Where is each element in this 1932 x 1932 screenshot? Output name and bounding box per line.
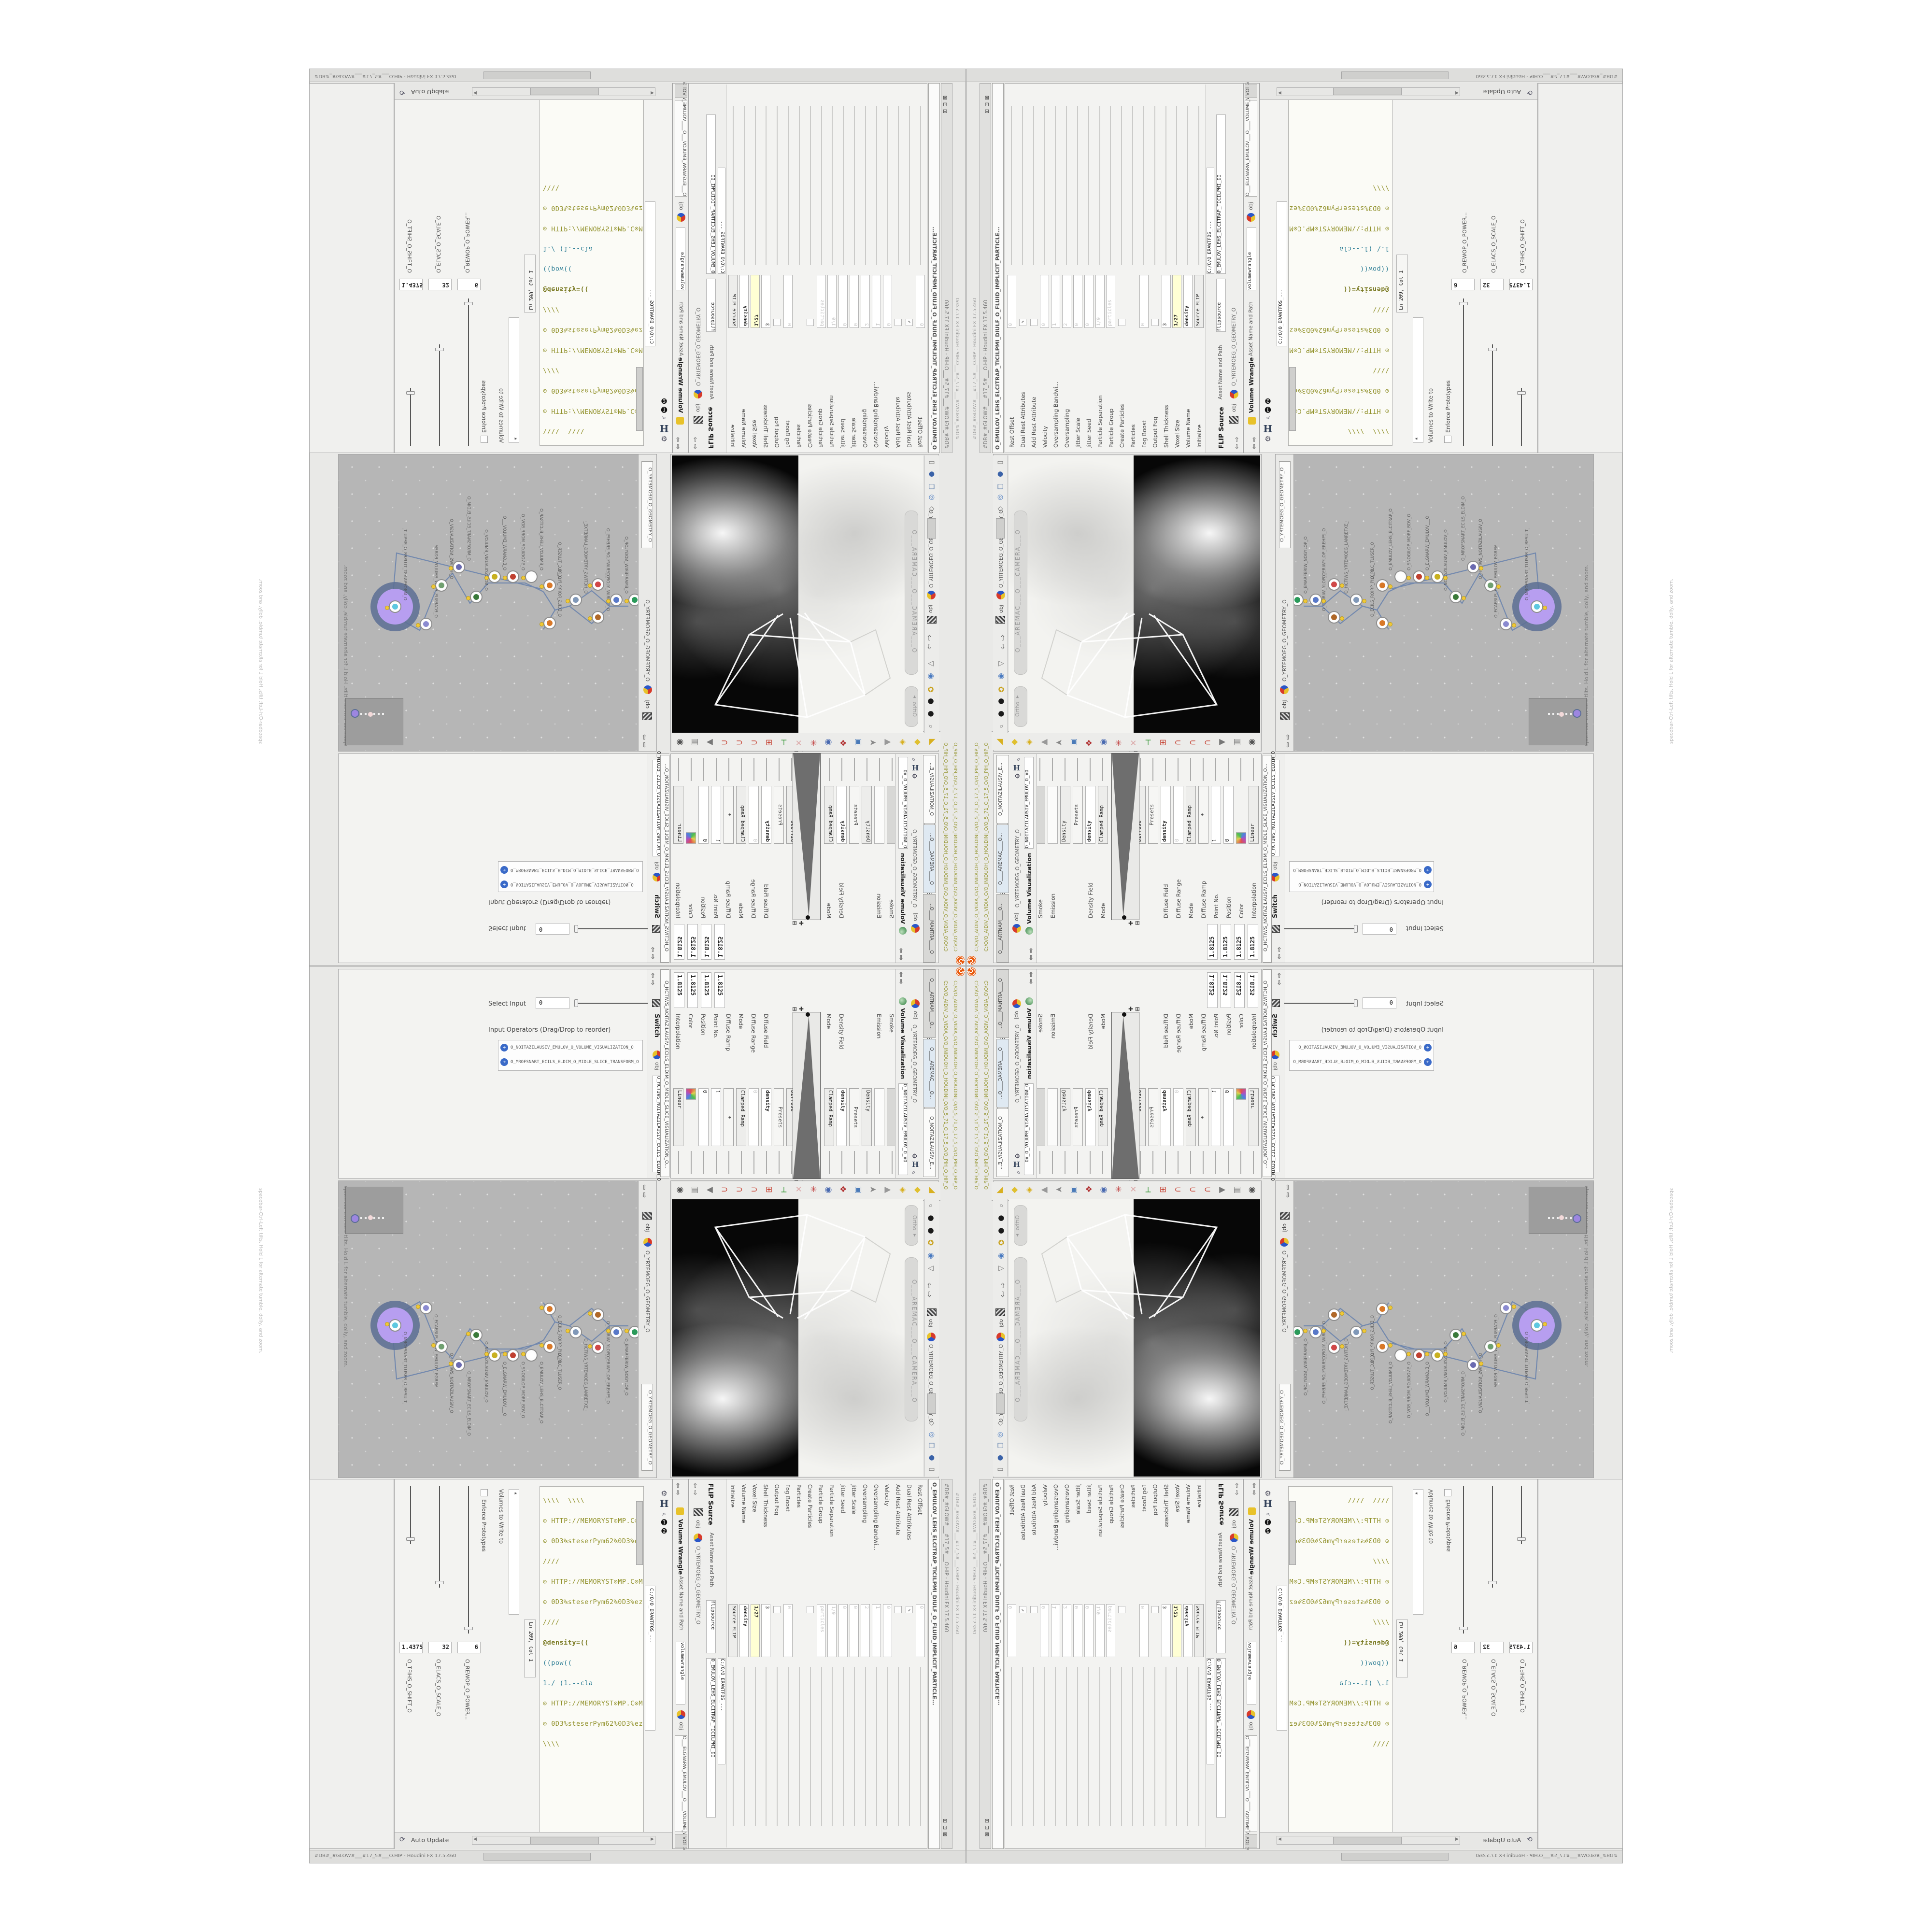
ramp-value-field[interactable]: 1.8125: [687, 924, 698, 960]
viz-breadcrumb[interactable]: obj: [1013, 913, 1020, 921]
pane-tab[interactable]: O____ARTNAM____O...: [996, 894, 1009, 963]
wrangle-slider-value[interactable]: 1.4375: [1509, 279, 1533, 290]
ramp-point-handle[interactable]: [806, 915, 810, 920]
flip-param-field[interactable]: particles: [1106, 1604, 1115, 1657]
flip-param-slider[interactable]: [1176, 1667, 1177, 1826]
viz-param-slider[interactable]: [1228, 758, 1229, 781]
code-scrollbar[interactable]: [1289, 367, 1296, 431]
viz-param-field[interactable]: 0: [1223, 786, 1234, 844]
flip-param-slider[interactable]: [788, 1667, 789, 1826]
flip-param-field[interactable]: particles: [1106, 275, 1115, 328]
close-button[interactable]: ⊠: [985, 1831, 989, 1838]
network-node[interactable]: O_NOITAZILAUSIV_EMULOV_O: [470, 1329, 483, 1341]
viewport-toolbar-icon[interactable]: ▣: [1067, 1183, 1081, 1197]
wrangle-slider-handle[interactable]: [1459, 302, 1468, 305]
outer-scrollbar[interactable]: [1341, 71, 1449, 79]
viz-param-slider[interactable]: [791, 1151, 792, 1174]
viewport-toolbar-icon[interactable]: ◀: [1215, 735, 1230, 749]
tab-switch-pane[interactable]: O_HCTIWS_NOITAZILAUSIV_ECILS_ELDIM_O_MID…: [660, 755, 669, 963]
flip-breadcrumb[interactable]: obj: [695, 1520, 701, 1528]
viz-param-slider[interactable]: [1203, 758, 1204, 781]
breadcrumb-pie-icon[interactable]: [1271, 873, 1279, 881]
viz-param-field[interactable]: Clamped Ramp: [736, 1088, 746, 1146]
viewport-side-icon[interactable]: ✪: [995, 1237, 1008, 1250]
flip-param-slider[interactable]: [1165, 1667, 1166, 1826]
wrangle-slider-handle[interactable]: [1488, 1581, 1497, 1584]
flip-param-slider[interactable]: [1121, 106, 1122, 265]
viewport-lower-icon[interactable]: ◇: [925, 503, 938, 514]
ramp-point-handle[interactable]: [1122, 915, 1126, 920]
viz-param-slider[interactable]: [854, 1151, 855, 1174]
pane-tab[interactable]: O_NOITAZILAUSIV_E...: [923, 755, 936, 824]
viewport-side-icon[interactable]: ●: [995, 1212, 1008, 1224]
ramp-value-field[interactable]: 1.8125: [1248, 924, 1258, 960]
viewport-scrollbar[interactable]: [996, 518, 1005, 539]
flip-asset-field[interactable]: flipsource: [706, 279, 716, 332]
window-titlebar[interactable]: #DB#_#GLOW#___#17_5#___O.HIP - Houdini F…: [941, 83, 952, 453]
wrangle-asset-field[interactable]: volumewrangle: [676, 227, 685, 290]
flip-software-path[interactable]: C:/O/O_ERAWTFOS_...: [1207, 1658, 1214, 1764]
flip-param-field[interactable]: 1/27: [751, 275, 760, 328]
viewport-lower-icon[interactable]: ●: [925, 468, 938, 480]
viewport-lower-icon[interactable]: ◎: [994, 491, 1007, 503]
minimize-button[interactable]: ⊟: [985, 108, 989, 114]
viewport-toolbar-icon[interactable]: ⊃: [1171, 1183, 1185, 1197]
wrangle-slider-value[interactable]: 1.4375: [1509, 1642, 1533, 1653]
viz-param-field[interactable]: Density: [1060, 786, 1070, 844]
flip-param-slider[interactable]: [1143, 106, 1144, 265]
viz-param-slider[interactable]: [1215, 758, 1216, 781]
auto-update-label[interactable]: Auto Update: [1483, 88, 1521, 96]
reorder-arrow-icon[interactable]: ➔: [500, 1044, 508, 1051]
viewport-side-icon[interactable]: ◉: [995, 670, 1008, 682]
viewport-side-icon[interactable]: ●: [924, 1212, 937, 1224]
viz-param-slider[interactable]: [728, 1151, 729, 1174]
network-node[interactable]: O_ECAFRUS_HTIW_EMULOV_EGREM_O: [420, 1302, 432, 1314]
viz-param-slider[interactable]: [892, 1151, 893, 1174]
viz-param-field[interactable]: Clamped Ramp: [1098, 786, 1108, 844]
viz-param-slider[interactable]: [879, 1151, 880, 1174]
info-icon[interactable]: ➊: [1261, 1518, 1275, 1527]
flip-param-field[interactable]: 3: [761, 1604, 770, 1657]
flip-param-field[interactable]: 1/9: [827, 1604, 837, 1657]
refresh-icon[interactable]: ⟳: [1527, 1836, 1533, 1844]
network-node[interactable]: O_EMARFERIW_NOGYLOP_O: [1309, 1326, 1322, 1338]
viz-param-slider[interactable]: [841, 758, 842, 781]
flip-param-field[interactable]: 3: [761, 275, 770, 328]
network-node[interactable]: O_SNOGILOP_MORF_BDV_O: [507, 570, 519, 583]
viz-param-slider[interactable]: [716, 1151, 717, 1174]
viewport-toolbar-icon[interactable]: ⊃: [747, 1183, 762, 1197]
reorder-arrow-icon[interactable]: ➔: [500, 1058, 508, 1066]
viewport-toolbar-icon[interactable]: ◆: [1008, 735, 1022, 749]
viz-param-field[interactable]: Linear: [1249, 1088, 1259, 1146]
flip-param-field[interactable]: [1118, 319, 1125, 326]
flip-param-field[interactable]: 0: [1084, 275, 1094, 328]
network-breadcrumb[interactable]: obj: [644, 1223, 651, 1232]
viz-geometry-path[interactable]: O_YRTEMOEG_O_GEOMETRY_O: [911, 829, 917, 908]
viewport-toolbar-icon[interactable]: ◉: [821, 735, 836, 749]
flip-param-field[interactable]: 1: [1051, 1604, 1060, 1657]
viz-param-slider[interactable]: [1052, 758, 1053, 781]
select-input-slider-handle[interactable]: [1354, 925, 1358, 933]
flip-param-slider[interactable]: [1088, 106, 1089, 265]
flip-param-field[interactable]: 0: [850, 275, 859, 328]
viz-param-field[interactable]: Clamped Ramp: [1186, 1088, 1196, 1146]
flip-param-field[interactable]: 1/9: [827, 275, 837, 328]
flip-geometry-path[interactable]: O_YRTEMOEG_O_GEOMETRY_O: [1231, 308, 1237, 386]
viz-param-slider[interactable]: [1039, 1151, 1040, 1174]
flip-param-field[interactable]: [1128, 1604, 1137, 1657]
network-node[interactable]: O_ERIWYLOP_EREHPS_O: [592, 578, 604, 591]
breadcrumb-pie-icon[interactable]: [1280, 1238, 1289, 1247]
select-input-field[interactable]: 0: [536, 997, 569, 1009]
pane-tab[interactable]: O____ARTNAM____O...: [996, 969, 1009, 1038]
viz-param-slider[interactable]: [691, 758, 692, 781]
viz-param-slider[interactable]: [716, 758, 717, 781]
outer-scrollbar[interactable]: [483, 1853, 591, 1861]
ramp-value-field[interactable]: 1.8125: [687, 972, 698, 1008]
wrangle-slider-value[interactable]: 32: [1480, 279, 1504, 290]
flip-param-slider[interactable]: [1187, 106, 1188, 265]
viz-param-slider[interactable]: [779, 1151, 780, 1174]
viewport-toolbar-icon[interactable]: ⊃: [1185, 1183, 1200, 1197]
wrangle-slider-rail[interactable]: [468, 1486, 469, 1634]
wrangle-breadcrumb[interactable]: obj: [1248, 1722, 1254, 1730]
network-node[interactable]: O_GNIRIW_YLOP_O: [592, 611, 604, 624]
info-icon[interactable]: ➊: [657, 405, 671, 414]
viewport-toolbar-icon[interactable]: ◈: [1023, 1183, 1037, 1197]
camera-pill[interactable]: O___AREMAC___O___CAMERA___O: [1014, 511, 1027, 675]
viz-param-slider[interactable]: [766, 758, 767, 781]
flip-node-path-field[interactable]: O_EMULOV_LEHS_ELCITRAP_TICILPMI_DI: [1216, 1658, 1226, 1818]
pane-tab[interactable]: O____ARTNAM____O...: [923, 969, 936, 1038]
network-node[interactable]: O_PILC_TLUSER_O: [1376, 1340, 1389, 1353]
flip-param-field[interactable]: 2: [1062, 1604, 1071, 1657]
flip-param-slider[interactable]: [1132, 106, 1133, 265]
viewport-scrollbar[interactable]: [927, 518, 936, 539]
network-node[interactable]: O_ERIWYLOP_EREHPS_O: [1328, 578, 1340, 591]
wrangle-slider-rail[interactable]: [1521, 1486, 1522, 1544]
viewport-toolbar-icon[interactable]: ⊃: [717, 735, 732, 749]
viewport-lower-icon[interactable]: ●: [994, 1452, 1007, 1464]
ramp-value-field[interactable]: 1.8125: [714, 972, 725, 1008]
switch-breadcrumb[interactable]: obj: [654, 1062, 660, 1070]
viz-param-field[interactable]: [874, 786, 884, 844]
breadcrumb-pie-icon[interactable]: [643, 1238, 652, 1247]
viewport-canvas[interactable]: Ortho ▾ O___AREMAC___O___CAMERA___O: [1009, 1199, 1260, 1477]
viz-param-field[interactable]: Density: [862, 1088, 872, 1146]
vex-code-editor[interactable]: \\\\ \\\\⊙ HTTP://MEMORYST⊙MP.C⊙M/grapht…: [1288, 1486, 1392, 1845]
viz-param-slider[interactable]: [703, 1151, 704, 1174]
flip-param-slider[interactable]: [1044, 106, 1045, 265]
ramp-point-handle[interactable]: [806, 1012, 810, 1017]
viewport-toolbar-icon[interactable]: ⊃: [732, 1183, 747, 1197]
breadcrumb-pie-icon[interactable]: [1230, 1534, 1238, 1542]
flip-param-slider[interactable]: [898, 1667, 899, 1826]
tab-flip-source[interactable]: O_EMULOV_LEHS_ELCITRAP_TICILPMI_DIULF_O_…: [928, 83, 940, 453]
viz-param-field[interactable]: 0: [698, 1088, 709, 1146]
input-operator-row[interactable]: ➔ O_NOITAZILAUSIV_EMULOV_O_VOLUME_VISUAL…: [1290, 1040, 1434, 1055]
flip-param-field[interactable]: 0: [1040, 1604, 1049, 1657]
tab-switch-pane[interactable]: O_HCTIWS_NOITAZILAUSIV_ECILS_ELDIM_O_MID…: [1263, 969, 1272, 1177]
flip-param-slider[interactable]: [1055, 1667, 1056, 1826]
viewport-toolbar-icon[interactable]: ◆: [910, 1183, 925, 1197]
flip-param-slider[interactable]: [821, 106, 822, 265]
software-path-field[interactable]: C:/O/O_ERAWTFOS_...: [1277, 1586, 1287, 1731]
flip-param-field[interactable]: density: [739, 1604, 749, 1657]
viewport-toolbar-icon[interactable]: ▣: [851, 1183, 866, 1197]
viz-param-field[interactable]: Presets: [1073, 1088, 1083, 1146]
ramp-value-field[interactable]: 1.8125: [701, 972, 711, 1008]
flip-param-field[interactable]: particles: [817, 1604, 826, 1657]
flip-param-slider[interactable]: [1022, 106, 1023, 265]
close-button[interactable]: ⊠: [943, 94, 947, 101]
viz-param-field[interactable]: Clamped Ramp: [824, 1088, 834, 1146]
ramp-value-field[interactable]: 1.8125: [701, 924, 711, 960]
viewport-breadcrumb[interactable]: obj: [998, 1319, 1004, 1327]
viewport-toolbar-icon[interactable]: ⊃: [747, 735, 762, 749]
flip-param-slider[interactable]: [766, 1667, 767, 1826]
flip-param-field[interactable]: [1128, 275, 1137, 328]
volumes-field[interactable]: *: [509, 317, 519, 443]
viewport-canvas[interactable]: Ortho ▾ O___AREMAC___O___CAMERA___O: [1009, 455, 1260, 733]
viz-param-field[interactable]: ✚: [1198, 1088, 1208, 1146]
select-input-slider-handle[interactable]: [574, 999, 578, 1007]
wrangle-slider-rail[interactable]: [410, 1486, 411, 1544]
viewport-toolbar-icon[interactable]: ✳: [806, 1183, 821, 1197]
flip-param-field[interactable]: Source FLIP: [1194, 1604, 1204, 1657]
flip-param-slider[interactable]: [1154, 106, 1155, 265]
flip-param-slider[interactable]: [832, 1667, 833, 1826]
software-path-field[interactable]: C:/O/O_ERAWTFOS_...: [645, 1586, 655, 1731]
wrangle-slider-rail[interactable]: [1492, 1486, 1493, 1588]
viewport-toolbar-icon[interactable]: ✳: [1111, 735, 1126, 749]
viewport-lower-icon[interactable]: ❐: [994, 1441, 1007, 1452]
flip-param-field[interactable]: Source FLIP: [728, 275, 738, 328]
flip-param-field[interactable]: 0: [838, 275, 848, 328]
viewport-side-icon[interactable]: ●: [924, 1224, 937, 1237]
viewport-toolbar-icon[interactable]: ▣: [851, 735, 866, 749]
viewport-toolbar-icon[interactable]: ⊃: [1200, 735, 1215, 749]
viz-param-field[interactable]: 1: [1211, 1088, 1221, 1146]
window-controls[interactable]: ⊟ ⊡ ⊠: [985, 1818, 989, 1838]
viz-param-slider[interactable]: [678, 1151, 679, 1174]
viewport-toolbar-icon[interactable]: ❖: [836, 1183, 851, 1197]
viz-param-field[interactable]: Presets: [849, 1088, 859, 1146]
viz-param-slider[interactable]: [753, 1151, 754, 1174]
viewport-side-icon[interactable]: ●: [995, 695, 1008, 708]
viz-param-field[interactable]: density: [1085, 786, 1095, 844]
flip-param-slider[interactable]: [1132, 1667, 1133, 1826]
network-node[interactable]: O_ELGNARW_EMULOV___O: [1431, 1349, 1444, 1362]
code-scrollbar[interactable]: [1289, 1501, 1296, 1565]
refresh-icon[interactable]: ⟳: [1527, 88, 1533, 96]
wrangle-slider-value[interactable]: 6: [1451, 279, 1475, 290]
flip-param-slider[interactable]: [1198, 1667, 1199, 1826]
vex-code-editor[interactable]: \\\\ \\\\⊙ HTTP://MEMORYST⊙MP.C⊙M/grapht…: [540, 87, 644, 446]
tab-geometry-network[interactable]: O_YRTEMOEG_O_GEOMETRY_O: [641, 1384, 653, 1471]
viz-param-slider[interactable]: [1090, 758, 1091, 781]
h-scrollbar[interactable]: ◀ ▶: [472, 87, 655, 96]
viewport-toolbar-icon[interactable]: ◉: [1245, 735, 1259, 749]
flip-param-field[interactable]: [773, 1606, 781, 1613]
flip-param-field[interactable]: 3: [1162, 1604, 1171, 1657]
network-path[interactable]: O_YRTEMOEG_O_GEOMETRY_O: [1281, 1250, 1288, 1333]
flip-asset-field[interactable]: flipsource: [1216, 279, 1226, 332]
viz-param-field[interactable]: Presets: [774, 786, 784, 844]
flip-geometry-path[interactable]: O_YRTEMOEG_O_GEOMETRY_O: [1231, 1546, 1237, 1624]
viz-param-field[interactable]: [686, 1088, 696, 1100]
magnifier-icon[interactable]: ⌕: [1261, 1509, 1275, 1518]
reorder-arrow-icon[interactable]: ➔: [500, 866, 508, 874]
network-node[interactable]: O_ECILS_ROIRP_PILC_O: [543, 617, 556, 629]
wrangle-slider-handle[interactable]: [1459, 1627, 1468, 1630]
reorder-arrow-icon[interactable]: ➔: [1424, 1058, 1432, 1066]
viewport-toolbar-icon[interactable]: ▤: [688, 1183, 702, 1197]
reorder-arrow-icon[interactable]: ➔: [1424, 866, 1432, 874]
viewport-toolbar-icon[interactable]: ➤: [866, 735, 880, 749]
network-node[interactable]: O_HCTIWS_NOITAZILAUSIV_O: [435, 1340, 448, 1353]
density-ramp-editor[interactable]: ⊞ ✚ ⊠ △: [793, 1012, 821, 1179]
flip-param-field[interactable]: [807, 1606, 814, 1613]
enforce-prototypes-checkbox[interactable]: [481, 1489, 488, 1496]
viz-param-field[interactable]: 1: [1211, 786, 1221, 844]
ramp-value-field[interactable]: 1.8125: [674, 924, 684, 960]
flip-node-path-field[interactable]: O_EMULOV_LEHS_ELCITRAP_TICILPMI_DI: [706, 114, 716, 274]
viz-breadcrumb[interactable]: obj: [912, 913, 919, 921]
breadcrumb-pie-icon[interactable]: [677, 1710, 685, 1719]
h-scrollbar[interactable]: ◀ ▶: [472, 1836, 655, 1845]
ramp-point-handle[interactable]: [1122, 1012, 1126, 1017]
select-input-field[interactable]: 0: [1363, 923, 1396, 935]
enforce-prototypes-checkbox[interactable]: [481, 436, 488, 443]
flip-param-field[interactable]: 3: [1162, 275, 1171, 328]
flip-geometry-path[interactable]: O_YRTEMOEG_O_GEOMETRY_O: [695, 1546, 701, 1624]
network-node[interactable]: O_ERIWYLOP_EREHPS_O: [1328, 1341, 1340, 1354]
tab-volume-wrangle[interactable]: O___ELGNARW_EMULOV___O____VOLUME_WRANGL.…: [675, 1735, 687, 1832]
flip-param-slider[interactable]: [1165, 106, 1166, 265]
network-node[interactable]: O_EMULOV_LEHS_ELCITRAP_O: [525, 1349, 538, 1362]
pane-tab[interactable]: O____AREMAC____O...: [996, 1039, 1009, 1108]
network-node[interactable]: O_MROFSNART_TLUSER_O_RESULT_TRANSFORM_O: [389, 600, 401, 613]
flip-param-field[interactable]: 0: [916, 1604, 925, 1657]
code-scrollbar[interactable]: [636, 367, 643, 431]
viz-node-path-field[interactable]: O_NOITAZILAUSIV_EMULOV_O_VO: [898, 757, 908, 849]
viewport-toolbar-icon[interactable]: ◉: [1245, 1183, 1259, 1197]
select-input-field[interactable]: 0: [536, 923, 569, 935]
viewport-toolbar-icon[interactable]: ◉: [821, 1183, 836, 1197]
flip-param-slider[interactable]: [832, 106, 833, 265]
wrangle-slider-rail[interactable]: [1492, 344, 1493, 446]
viewport-toolbar-icon[interactable]: ▤: [1230, 1183, 1245, 1197]
viewport-lower-icon[interactable]: ❐: [994, 480, 1007, 491]
wrangle-breadcrumb[interactable]: obj: [678, 1722, 684, 1730]
viz-param-field[interactable]: 1: [711, 786, 721, 844]
network-node[interactable]: O_HCTIWS_YRTEMOEG_LANRETXE_O: [569, 594, 582, 606]
viewport-toolbar-icon[interactable]: ⟂: [1141, 735, 1155, 749]
network-node[interactable]: O_SNOGILOP_MORF_BDV_O: [507, 1349, 519, 1362]
input-operator-row[interactable]: ➔ O_NOITAZILAUSIV_EMULOV_O_VOLUME_VISUAL…: [498, 877, 642, 892]
viewport-toolbar-icon[interactable]: ⊞: [762, 1183, 776, 1197]
flip-param-slider[interactable]: [810, 106, 811, 265]
viz-param-field[interactable]: Clamped Ramp: [1186, 786, 1196, 844]
viz-param-slider[interactable]: [1152, 1151, 1153, 1174]
viewport-toolbar-icon[interactable]: ➤: [1052, 1183, 1066, 1197]
viz-geometry-path[interactable]: O_YRTEMOEG_O_GEOMETRY_O: [1015, 829, 1021, 908]
viewport-toolbar-icon[interactable]: ❖: [1081, 735, 1096, 749]
network-node[interactable]: O_PILC_TLUSER_O: [1376, 579, 1389, 592]
viewport-toolbar-icon[interactable]: ⟂: [777, 1183, 791, 1197]
viz-param-field[interactable]: Clamped Ramp: [736, 786, 746, 844]
network-node[interactable]: O_MROFSNART_ECILS_ELDIM_O: [453, 561, 465, 573]
flip-breadcrumb[interactable]: obj: [695, 404, 701, 412]
flip-param-slider[interactable]: [909, 106, 910, 265]
flip-param-slider[interactable]: [1187, 1667, 1188, 1826]
viewport-side-icon[interactable]: ✪: [924, 682, 937, 695]
tab-vol[interactable]: VOl: [1245, 85, 1257, 98]
volumes-field[interactable]: *: [509, 1489, 519, 1615]
viewport-toolbar-icon[interactable]: ❖: [836, 735, 851, 749]
info-icon[interactable]: ➊: [1261, 405, 1275, 414]
viz-param-slider[interactable]: [1065, 758, 1065, 781]
h-scrollbar[interactable]: ◀ ▶: [1277, 1836, 1460, 1845]
viewport-lower-icon[interactable]: ◎: [994, 1429, 1007, 1441]
network-node[interactable]: O_ECAFRUS_HTIW_EMULOV_EGREM_O: [420, 618, 432, 630]
viz-param-slider[interactable]: [741, 1151, 742, 1174]
breadcrumb-pie-icon[interactable]: [1012, 999, 1021, 1008]
network-node[interactable]: O_PILC_TLUSER_O: [543, 1340, 556, 1353]
vex-code-editor[interactable]: \\\\ \\\\⊙ HTTP://MEMORYST⊙MP.C⊙M/grapht…: [540, 1486, 644, 1845]
viz-param-slider[interactable]: [854, 758, 855, 781]
network-node[interactable]: O_ECILS_ROIRP_PILC_O: [1376, 1303, 1389, 1315]
wrangle-slider-rail[interactable]: [1463, 1486, 1464, 1634]
viz-param-slider[interactable]: [1039, 758, 1040, 781]
minimize-button[interactable]: ⊟: [943, 108, 947, 114]
viewport-lower-icon[interactable]: ❐: [925, 480, 938, 491]
viewport-canvas[interactable]: Ortho ▾ O___AREMAC___O___CAMERA___O: [672, 1199, 923, 1477]
wrangle-slider-rail[interactable]: [1521, 388, 1522, 446]
wrangle-slider-value[interactable]: 32: [428, 1642, 452, 1653]
network-breadcrumb[interactable]: obj: [1281, 700, 1288, 709]
breadcrumb-pie-icon[interactable]: [1280, 685, 1289, 694]
viz-param-slider[interactable]: [1090, 1151, 1091, 1174]
viewport-lower-icon[interactable]: ◎: [925, 1429, 938, 1441]
viz-param-field[interactable]: 0: [749, 786, 759, 844]
flip-param-slider[interactable]: [744, 1667, 745, 1826]
viewport-toolbar-icon[interactable]: ◉: [673, 735, 687, 749]
viz-param-field[interactable]: 0: [698, 786, 709, 844]
flip-param-slider[interactable]: [777, 1667, 778, 1826]
flip-param-field[interactable]: Source FLIP: [1194, 275, 1204, 328]
viewport-toolbar-icon[interactable]: ◀: [702, 1183, 717, 1197]
flip-param-slider[interactable]: [1077, 1667, 1078, 1826]
volumes-field[interactable]: *: [1413, 317, 1423, 443]
flip-param-slider[interactable]: [810, 1667, 811, 1826]
reorder-arrow-icon[interactable]: ➔: [1424, 1044, 1432, 1051]
help-icon[interactable]: ❷: [657, 397, 671, 405]
network-editor[interactable]: spacebar-Ctrl-Left tilts. Hold L for alt…: [338, 454, 657, 752]
breadcrumb-pie-icon[interactable]: [1012, 924, 1021, 933]
viz-param-slider[interactable]: [1178, 1151, 1179, 1174]
breadcrumb-pie-icon[interactable]: [996, 591, 1005, 599]
window-controls[interactable]: ⊟ ⊡ ⊠: [985, 94, 989, 114]
breadcrumb-pie-icon[interactable]: [1247, 1710, 1255, 1719]
network-node[interactable]: O_HCTIWS_NOITAZILAUSIV_O: [1484, 579, 1497, 592]
viz-param-slider[interactable]: [1077, 1151, 1078, 1174]
flip-param-slider[interactable]: [1022, 1667, 1023, 1826]
flip-param-field[interactable]: 0: [883, 275, 892, 328]
